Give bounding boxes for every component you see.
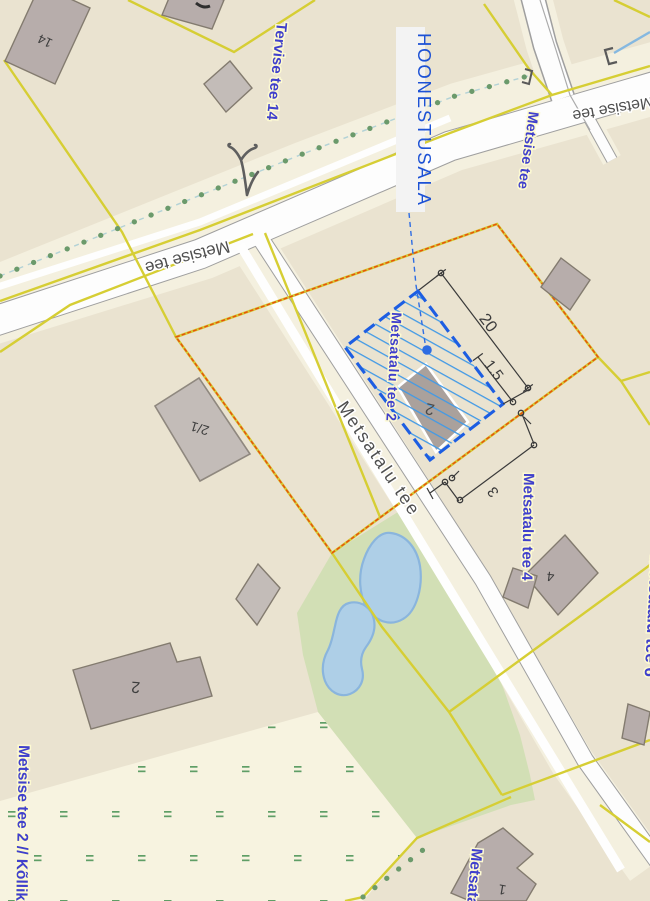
svg-text:Metsise tee 2 // Kõllik: Metsise tee 2 // Kõllik (12, 745, 32, 901)
svg-text:HOONESTUSALA: HOONESTUSALA (414, 33, 435, 207)
svg-text:Metsatalu tee 4: Metsatalu tee 4 (518, 473, 537, 581)
svg-text:2: 2 (131, 678, 141, 696)
